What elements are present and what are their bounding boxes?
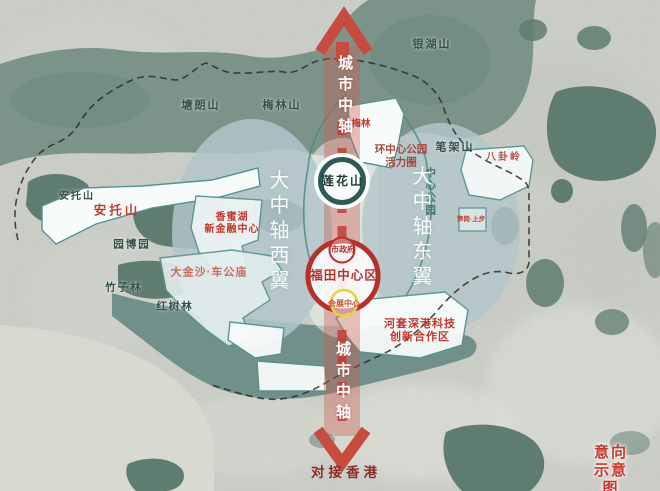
convention-center-ring (331, 290, 357, 316)
planning-map: 银湖山 塘朗山 梅林山 笔架山 安托山 园博园 竹子林 红树林 安托山 香蜜湖 … (0, 0, 660, 491)
sungang-box (459, 208, 486, 231)
lotus-hill-ring (321, 160, 364, 203)
map-graphics (0, 0, 660, 491)
city-hall-ring (330, 238, 355, 263)
hetao-polygon-south (257, 361, 327, 391)
